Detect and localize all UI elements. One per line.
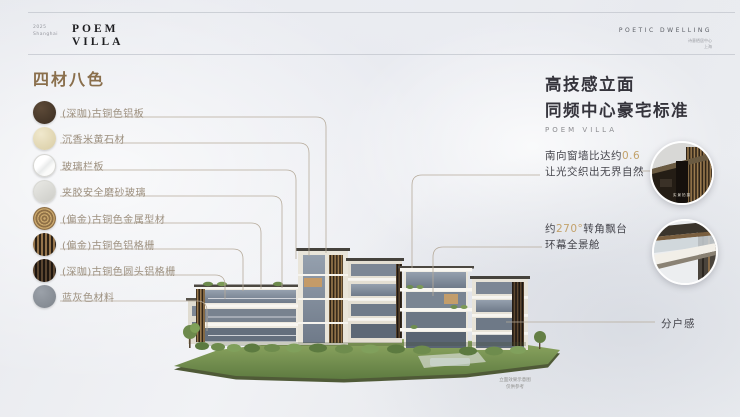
- header-year: 2025: [33, 25, 58, 32]
- annotation-corner-balcony: 约270°转角飘台 环幕全景舱: [545, 221, 627, 254]
- right-title-line1: 高技感立面: [545, 72, 689, 98]
- annotation1-line1: 南向窗墙比达约0.6: [545, 148, 644, 164]
- header-right-title: POETIC DWELLING: [619, 27, 712, 34]
- right-panel-title: 高技感立面 同频中心豪宅标准: [545, 72, 689, 125]
- annotation1-highlight: 0.6: [622, 150, 640, 162]
- material-label: (偏金)古铜色铝格栅: [62, 237, 155, 252]
- annotation2-line1: 约270°转角飘台: [545, 221, 627, 237]
- brand-logo-line1: POEM: [72, 23, 123, 36]
- right-panel-subtitle: POEM VILLA: [545, 126, 617, 134]
- material-row: 玻璃栏板: [33, 153, 223, 177]
- material-label: 夹胶安全磨砂玻璃: [62, 184, 146, 199]
- building-caption-line1: 立面效果示意图: [492, 378, 538, 385]
- material-row: (偏金)古铜色金属型材: [33, 206, 223, 230]
- annotation2-prefix: 约: [545, 223, 556, 235]
- header-top-rule: [28, 12, 735, 13]
- callout-photo-balcony-detail: [652, 219, 718, 285]
- annotation1-line2: 让光交织出无界自然: [545, 164, 644, 180]
- material-label: (深咖)古铜色铝板: [62, 105, 144, 120]
- annotation1-prefix: 南向窗墙比达约: [545, 150, 622, 162]
- brand-logo-line2: VILLA: [72, 36, 123, 49]
- material-swatch-blue-gray: [33, 285, 56, 308]
- villa-rendering: [168, 238, 568, 393]
- material-swatch-frosted: [33, 180, 56, 203]
- annotation2-suffix: 转角飘台: [583, 223, 627, 235]
- material-swatch-gold-louver: [33, 233, 56, 256]
- slide: 2025 Shanghai POEM VILLA POETIC DWELLING…: [0, 0, 740, 417]
- header-bottom-rule: [28, 54, 735, 55]
- material-row: (深咖)古铜色铝板: [33, 100, 223, 124]
- material-swatch-dark-brown: [33, 101, 56, 124]
- callout-photo-facade-detail: 实景拍摄: [650, 141, 714, 205]
- material-swatch-cream: [33, 127, 56, 150]
- material-swatch-brushed-gold: [33, 207, 56, 230]
- material-label: 玻璃栏板: [62, 158, 104, 173]
- annotation2-line2: 环幕全景舱: [545, 237, 627, 253]
- material-swatch-dark-louver: [33, 259, 56, 282]
- brand-logo: POEM VILLA: [72, 23, 123, 49]
- material-row: 夹胶安全磨砂玻璃: [33, 179, 223, 203]
- annotation-unit-separation: 分户感: [661, 316, 696, 331]
- material-row: (深咖)古铜色圆头铝格栅: [33, 258, 223, 282]
- right-title-line2: 同频中心豪宅标准: [545, 98, 689, 124]
- material-label: (偏金)古铜色金属型材: [62, 211, 165, 226]
- material-label: (深咖)古铜色圆头铝格栅: [62, 263, 176, 278]
- callout-photo-caption: 实景拍摄: [652, 193, 712, 198]
- material-label: 沉香米黄石材: [62, 131, 125, 146]
- material-swatch-glass: [33, 154, 56, 177]
- material-row: 沉香米黄石材: [33, 126, 223, 150]
- header-fineprint: 诗意栖居中心 上海: [688, 38, 712, 51]
- material-row: 蓝灰色材料: [33, 284, 223, 308]
- header-year-city: 2025 Shanghai: [33, 25, 58, 39]
- annotation2-highlight: 270°: [556, 223, 583, 235]
- header-fineprint-line2: 上海: [688, 44, 712, 50]
- header-city: Shanghai: [33, 32, 58, 39]
- annotation-window-wall-ratio: 南向窗墙比达约0.6 让光交织出无界自然: [545, 148, 644, 181]
- balcony-photo-illustration: [654, 221, 716, 283]
- building-caption: 立面效果示意图 仅供参考: [492, 378, 538, 392]
- material-label: 蓝灰色材料: [62, 289, 115, 304]
- materials-title: 四材八色: [33, 66, 105, 90]
- material-row: (偏金)古铜色铝格栅: [33, 232, 223, 256]
- building-caption-line2: 仅供参考: [492, 385, 538, 392]
